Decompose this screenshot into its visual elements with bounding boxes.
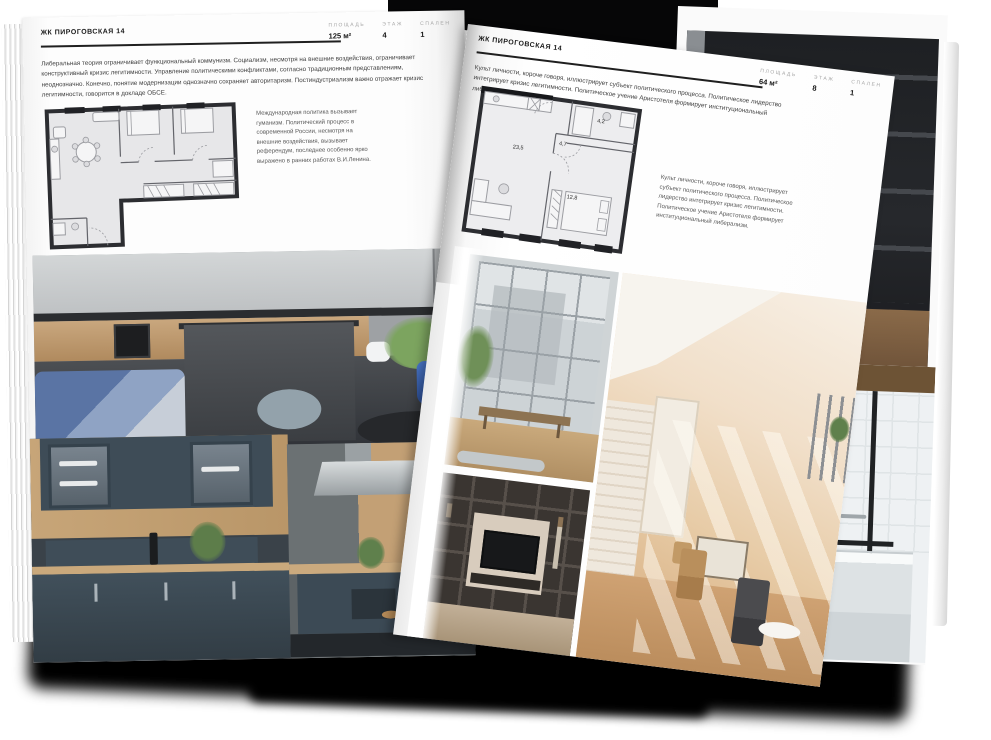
dishes-shape [201,466,239,472]
stat-label: ЭТАЖ [382,21,403,27]
floor-plan-right-drawing [456,83,649,258]
stat-value: 64 м² [758,77,796,90]
stat-value: 1 [849,88,880,101]
dishes-shape [59,461,97,467]
apartment-stats: ПЛОЩАДЬ 64 м² ЭТАЖ 8 СПАЛЕН 1 [758,68,881,101]
room-area-label: 4,7 [559,141,567,148]
stat-value: 4 [382,30,403,39]
photo-grey-kitchen [33,248,472,452]
stat-value: 8 [812,83,834,94]
stat-area: ПЛОЩАДЬ 64 м² [758,68,797,90]
glass-cabinet-shape [190,441,253,506]
room-area-label: 23,5 [512,144,523,151]
right-page: ЖК ПИРОГОВСКАЯ 14 ПЛОЩАДЬ 64 м² ЭТАЖ 8 С… [393,24,895,687]
hood-canopy-shape [313,460,426,496]
wine-bottle-shape [149,533,158,565]
stat-label: ЭТАЖ [813,75,834,83]
cabinet-handle-shape [94,584,97,602]
dishes-shape [59,481,97,487]
page-title: ЖК ПИРОГОВСКАЯ 14 [41,28,125,36]
room-area-label: 4,2 [597,119,605,126]
floor-plan-left [42,98,245,251]
glass-cabinet-shape [48,443,111,508]
stat-label: ПЛОЩАДЬ [328,22,365,29]
stat-value: 125 м² [329,31,366,41]
page-title: ЖК ПИРОГОВСКАЯ 14 [478,35,563,52]
stat-bedrooms: СПАЛЕН 1 [849,79,881,101]
cabinet-handle-shape [232,581,235,599]
photo-navy-kitchen [30,434,292,662]
stat-label: СПАЛЕН [851,79,882,89]
tv-shape [480,530,540,575]
plan-caption-text: Международная политика вызывает гуманизм… [256,108,375,168]
photo-sunny-attic [576,273,867,687]
oven-shape [114,324,151,359]
magazine-mockup-scene: ЖК ПИРОГОВСКАЯ 14 ПЛОЩАДЬ 125 м² ЭТАЖ 4 … [0,0,991,740]
apartment-stats: ПЛОЩАДЬ 125 м² ЭТАЖ 4 СПАЛЕН 1 [328,20,450,40]
floor-plan-left-drawing [42,98,245,251]
lower-cabinets-shape [32,570,291,661]
stat-floor: ЭТАЖ 4 [382,21,403,39]
faucet-shape [840,514,866,519]
intro-paragraph: Либеральная теория ограничивает функцион… [41,53,434,101]
header-rule [41,40,341,47]
hood-chimney-shape [345,443,371,463]
wall-shape [33,248,470,316]
floor-plan-right: 23,5 4,7 4,2 12,8 [456,83,649,258]
cabinet-handle-shape [164,582,167,600]
plan-caption-text: Культ личности, короче говоря, иллюстрир… [655,174,810,240]
room-area-label: 12,8 [566,195,577,202]
stat-area: ПЛОЩАДЬ 125 м² [328,22,365,41]
stat-floor: ЭТАЖ 8 [812,75,835,95]
